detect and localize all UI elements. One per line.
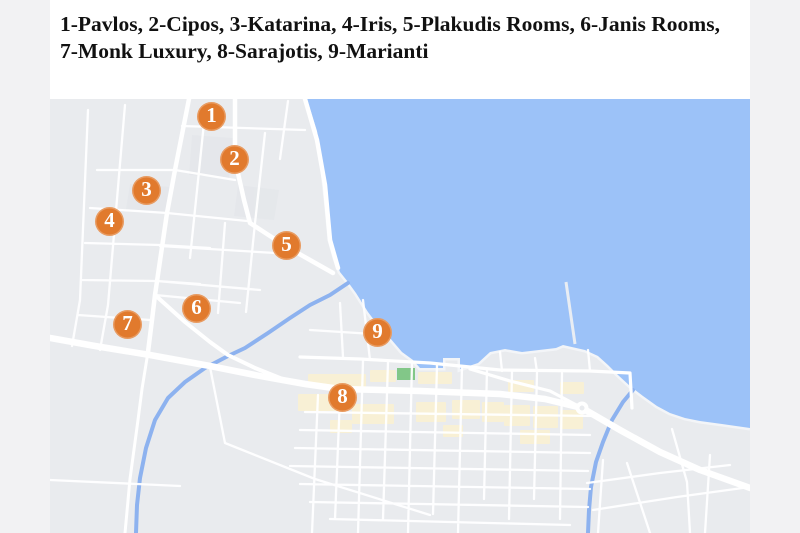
marker-number: 4 — [104, 208, 115, 233]
marker-number: 6 — [191, 295, 202, 320]
map-view[interactable]: 123456789 — [50, 99, 750, 533]
marker-number: 1 — [206, 103, 217, 128]
map-marker-1[interactable]: 1 — [197, 102, 226, 131]
page-card: 1-Pavlos, 2-Cipos, 3-Katarina, 4-Iris, 5… — [50, 0, 750, 533]
marker-number: 9 — [372, 319, 383, 344]
map-marker-7[interactable]: 7 — [113, 310, 142, 339]
marker-number: 3 — [141, 177, 152, 202]
marker-number: 8 — [337, 384, 348, 409]
marker-number: 5 — [281, 232, 292, 257]
map-marker-6[interactable]: 6 — [182, 294, 211, 323]
screenshot-root: 1-Pavlos, 2-Cipos, 3-Katarina, 4-Iris, 5… — [0, 0, 800, 533]
marker-number: 2 — [229, 146, 240, 171]
legend-line-1: 1-Pavlos, 2-Cipos, 3-Katarina, 4-Iris, 5… — [60, 11, 744, 38]
map-marker-2[interactable]: 2 — [220, 145, 249, 174]
map-marker-9[interactable]: 9 — [363, 318, 392, 347]
map-markers: 123456789 — [50, 99, 750, 533]
marker-number: 7 — [122, 311, 133, 336]
map-marker-3[interactable]: 3 — [132, 176, 161, 205]
map-marker-8[interactable]: 8 — [328, 383, 357, 412]
map-marker-4[interactable]: 4 — [95, 207, 124, 236]
legend-line-2: 7-Monk Luxury, 8-Sarajotis, 9-Marianti — [60, 38, 744, 65]
legend: 1-Pavlos, 2-Cipos, 3-Katarina, 4-Iris, 5… — [50, 0, 750, 99]
map-marker-5[interactable]: 5 — [272, 231, 301, 260]
